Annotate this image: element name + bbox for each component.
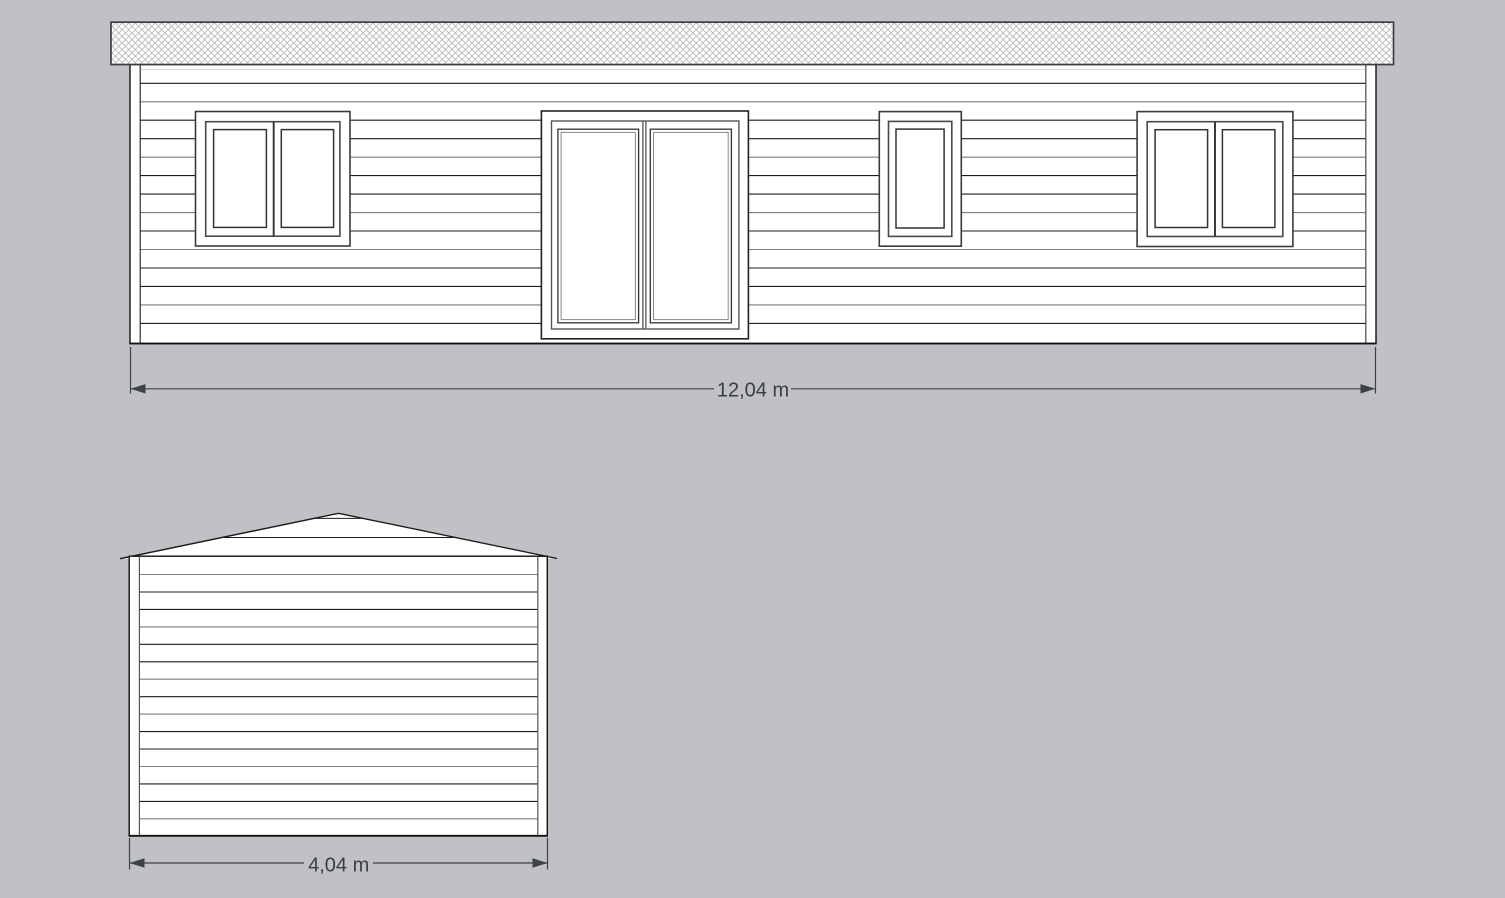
svg-text:12,04 m: 12,04 m — [717, 379, 789, 401]
svg-text:4,04 m: 4,04 m — [308, 855, 369, 877]
